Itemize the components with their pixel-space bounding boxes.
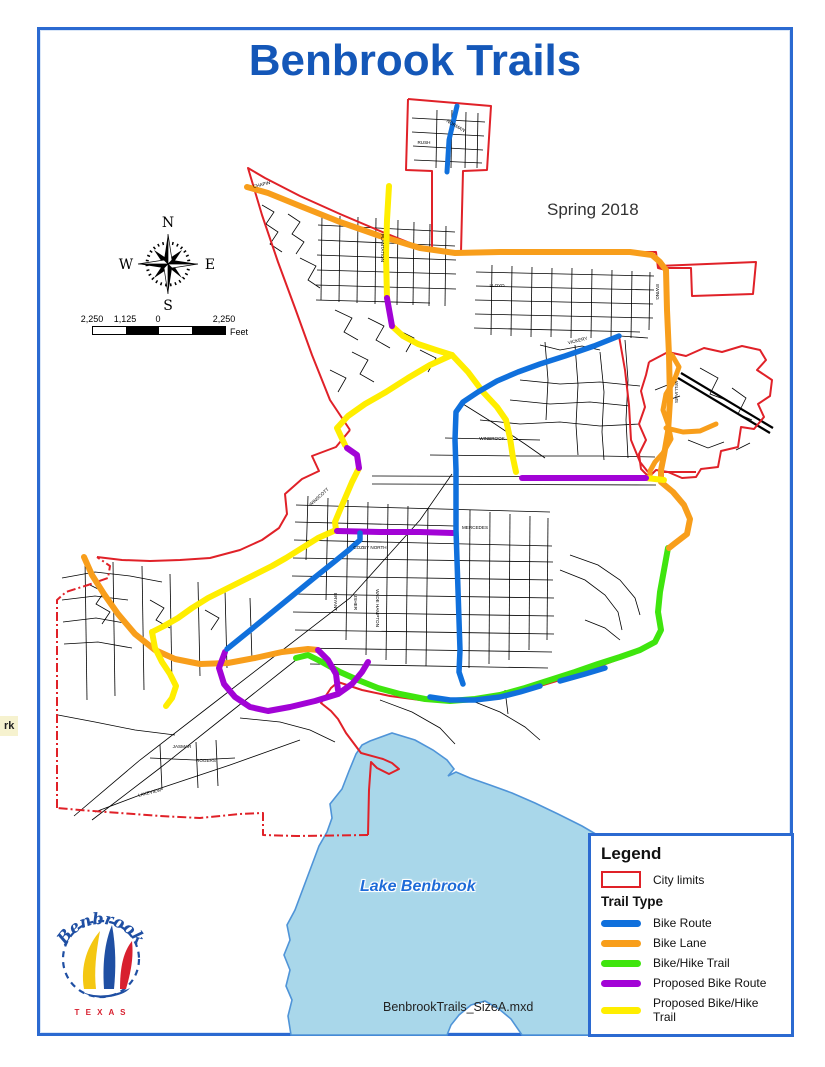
- street-line: [288, 214, 304, 254]
- street-line: [62, 596, 128, 600]
- scale-segment: [192, 327, 225, 334]
- legend-item-label: Proposed Bike/Hike Trail: [653, 996, 781, 1024]
- street-line: [600, 352, 604, 460]
- legend-item: Proposed Bike Route: [601, 976, 781, 990]
- trail-lane: [84, 557, 318, 664]
- legend-item-label: Bike/Hike Trail: [653, 956, 730, 970]
- legend-item-label: Bike Route: [653, 916, 712, 930]
- legend-items: Bike RouteBike LaneBike/Hike TrailPropos…: [601, 916, 781, 1024]
- street-line: [489, 512, 490, 664]
- logo-texas-text: T E X A S: [75, 1008, 128, 1017]
- street-name-label: ROGERS: [196, 758, 216, 763]
- street-line: [591, 269, 592, 338]
- street-line: [476, 272, 654, 276]
- legend-item: Bike Lane: [601, 936, 781, 950]
- scale-tick-label: 2,250: [81, 314, 104, 324]
- street-name-label: LAKEVIEW: [138, 787, 163, 798]
- street-line: [475, 300, 653, 304]
- street-line: [92, 660, 296, 820]
- trail-prop_hike: [335, 468, 359, 530]
- legend-swatch-prop_route: [601, 980, 641, 987]
- city-limits-line: [248, 168, 432, 430]
- street-line: [150, 758, 235, 760]
- street-name-label: CHAPIN: [253, 180, 271, 189]
- street-line: [296, 505, 550, 512]
- city-limits-line: [57, 808, 368, 836]
- street-line: [352, 352, 374, 382]
- legend-item-label: Proposed Bike Route: [653, 976, 766, 990]
- street-line: [300, 258, 320, 288]
- compass-e-label: E: [205, 257, 215, 273]
- street-line: [326, 498, 328, 600]
- street-name-label: JASMAR: [173, 744, 192, 749]
- scale-segment: [93, 327, 126, 334]
- page-title: Benbrook Trails: [37, 36, 793, 86]
- street-line: [142, 566, 144, 690]
- street-line: [240, 718, 335, 742]
- legend-swatch-route: [601, 920, 641, 927]
- legend-city-limits-row: City limits: [601, 871, 781, 888]
- compass-w-label: W: [119, 257, 134, 273]
- scale-bar: 2,250 1,125 0 2,250 Feet: [92, 314, 272, 344]
- street-name-label: BRYANT: [333, 593, 338, 611]
- street-line: [571, 268, 572, 338]
- svg-text:Benbrook: Benbrook: [52, 909, 149, 948]
- compass-rose-icon: N S E W: [118, 210, 218, 315]
- street-line: [570, 555, 640, 615]
- street-name-label: VICKERY: [567, 336, 588, 346]
- street-line: [330, 370, 346, 392]
- street-line: [413, 222, 414, 305]
- trail-prop_route: [318, 650, 338, 690]
- scale-tick-label: 0: [155, 314, 160, 324]
- street-line: [310, 664, 548, 668]
- street-line: [58, 715, 175, 735]
- street-line: [292, 594, 554, 598]
- street-line: [295, 522, 455, 526]
- street-line: [465, 112, 466, 168]
- map-date-label: Spring 2018: [547, 200, 639, 220]
- street-line: [216, 740, 218, 786]
- street-line: [386, 504, 388, 660]
- legend-box: Legend City limits Trail Type Bike Route…: [588, 833, 794, 1037]
- legend-swatch-prop_hike: [601, 1007, 641, 1014]
- edge-cutoff-label: rk: [0, 716, 18, 736]
- street-line: [470, 700, 540, 740]
- legend-item: Bike Route: [601, 916, 781, 930]
- street-line: [339, 216, 340, 302]
- street-line: [547, 518, 548, 640]
- legend-item: Bike/Hike Trail: [601, 956, 781, 970]
- compass-s-label: S: [163, 298, 173, 314]
- street-line: [321, 215, 322, 300]
- trail-prop_hike: [337, 355, 452, 445]
- scale-segment: [126, 327, 159, 334]
- city-limits-label: City limits: [653, 873, 704, 887]
- street-line: [700, 368, 726, 400]
- street-name-label: WADE HAMPTON: [375, 589, 380, 627]
- city-limits-line: [658, 262, 756, 296]
- scale-unit-label: Feet: [230, 327, 248, 337]
- street-line: [445, 226, 446, 306]
- trail-prop_route: [347, 448, 359, 468]
- street-line: [475, 314, 653, 318]
- trail-prop_route: [337, 531, 453, 533]
- source-file-label: BenbrookTrails_SizeA.mxd: [383, 1000, 533, 1014]
- street-name-label: USHER: [353, 594, 358, 611]
- street-line: [631, 271, 632, 338]
- sail-yellow: [83, 931, 100, 989]
- street-line: [436, 110, 437, 168]
- street-line: [585, 620, 620, 640]
- city-limits-swatch: [601, 871, 641, 888]
- scale-bar-segments: [92, 326, 226, 335]
- street-line: [196, 742, 198, 788]
- street-name-label: LLOYD: [489, 283, 505, 288]
- logo-name-text: Benbrook: [52, 909, 149, 948]
- street-line: [429, 224, 430, 306]
- street-line: [372, 484, 656, 485]
- city-limits-line: [406, 99, 432, 252]
- trail-route: [430, 686, 540, 700]
- street-line: [294, 540, 552, 546]
- street-name-label: WINSCOTT: [308, 487, 330, 507]
- street-line: [531, 267, 532, 337]
- legend-swatch-hike: [601, 960, 641, 967]
- map-page: NORMANRUSHCHAPINPLANTATIONLLOYDEWINGWILL…: [0, 0, 825, 1067]
- street-line: [62, 572, 162, 582]
- trail-lane: [247, 187, 670, 480]
- street-line: [293, 612, 554, 616]
- street-line: [560, 570, 622, 630]
- street-line: [335, 310, 358, 340]
- street-name-label: PLANTATION: [380, 234, 385, 262]
- street-line: [688, 440, 724, 448]
- trail-type-heading: Trail Type: [601, 894, 781, 909]
- street-line: [375, 218, 376, 304]
- lake-benbrook-label: Lake Benbrook: [360, 878, 476, 896]
- street-line: [520, 380, 640, 386]
- trail-prop_hike: [152, 632, 176, 706]
- street-line: [113, 562, 115, 696]
- street-line: [474, 328, 640, 332]
- street-line: [205, 610, 219, 630]
- street-line: [510, 400, 630, 406]
- street-line: [575, 345, 578, 455]
- street-name-label: WILLIAMS: [674, 381, 679, 403]
- street-name-label: EWING: [655, 284, 660, 300]
- street-line: [611, 270, 612, 338]
- street-name-label: RUSH: [417, 140, 430, 145]
- street-line: [64, 642, 132, 648]
- street-name-label: WINBROOK: [479, 436, 505, 441]
- legend-swatch-lane: [601, 940, 641, 947]
- scale-tick-label: 2,250: [213, 314, 236, 324]
- compass-n-label: N: [162, 215, 174, 231]
- scale-segment: [159, 327, 192, 334]
- highway-line: [681, 373, 773, 428]
- legend-item-label: Bike Lane: [653, 936, 706, 950]
- legend-item: Proposed Bike/Hike Trail: [601, 996, 781, 1024]
- street-line: [170, 574, 172, 684]
- sail-blue: [103, 925, 115, 989]
- highway-line: [678, 378, 770, 433]
- scale-bar-ticks: 2,250 1,125 0 2,250: [92, 314, 272, 326]
- street-line: [509, 514, 510, 660]
- street-name-label: MERCEDES: [462, 525, 488, 530]
- street-line: [295, 630, 554, 634]
- scale-tick-label: 1,125: [114, 314, 137, 324]
- trail-lane: [666, 424, 716, 432]
- street-line: [551, 268, 552, 337]
- street-line: [649, 272, 650, 330]
- street-name-label: COZBY NORTH: [353, 545, 386, 550]
- street-line: [545, 342, 548, 420]
- trail-prop_hike: [452, 355, 516, 472]
- street-line: [397, 220, 398, 305]
- street-line: [292, 576, 553, 580]
- trail-hike: [296, 548, 668, 701]
- trail-lane: [661, 482, 690, 548]
- street-line: [469, 510, 470, 668]
- street-line: [346, 500, 348, 640]
- benbrook-city-logo: Benbrook T E X A S: [42, 893, 160, 1021]
- street-line: [85, 560, 87, 700]
- street-line: [529, 516, 530, 650]
- legend-title: Legend: [601, 844, 781, 864]
- street-line: [368, 318, 390, 348]
- trail-prop_hike: [386, 186, 389, 298]
